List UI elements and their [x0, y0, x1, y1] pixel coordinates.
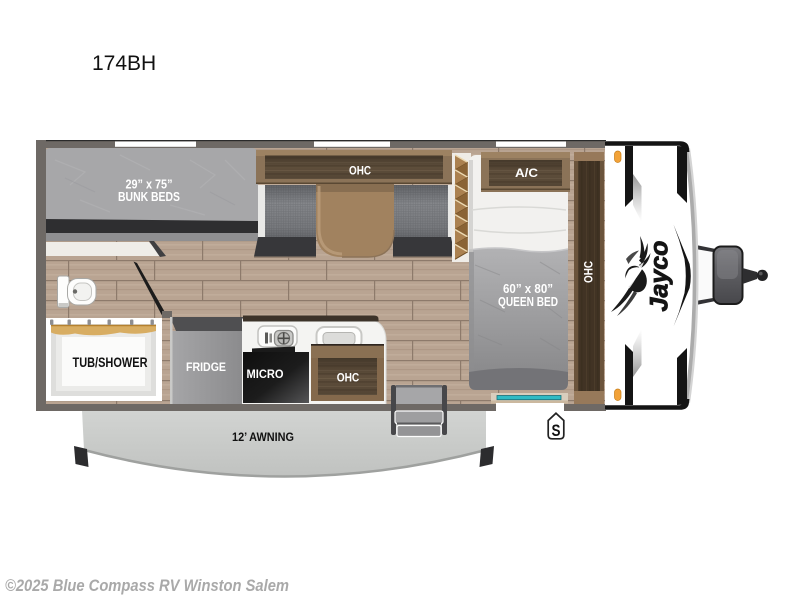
svg-text:FRIDGE: FRIDGE: [186, 360, 226, 374]
svg-text:BUNK BEDS: BUNK BEDS: [118, 190, 180, 204]
svg-text:12’ AWNING: 12’ AWNING: [232, 430, 294, 444]
svg-text:TUB/SHOWER: TUB/SHOWER: [73, 355, 148, 370]
svg-text:MICRO: MICRO: [247, 367, 284, 381]
svg-text:S: S: [552, 421, 561, 440]
svg-text:OHC: OHC: [582, 261, 596, 283]
svg-text:A/C: A/C: [515, 166, 538, 180]
svg-text:©2025 Blue Compass RV Winston: ©2025 Blue Compass RV Winston Salem: [5, 577, 289, 595]
svg-text:Jayco: Jayco: [646, 241, 674, 312]
svg-text:QUEEN BED: QUEEN BED: [498, 294, 558, 309]
svg-text:174BH: 174BH: [92, 52, 156, 75]
svg-text:OHC: OHC: [337, 371, 360, 385]
svg-text:OHC: OHC: [349, 164, 371, 178]
